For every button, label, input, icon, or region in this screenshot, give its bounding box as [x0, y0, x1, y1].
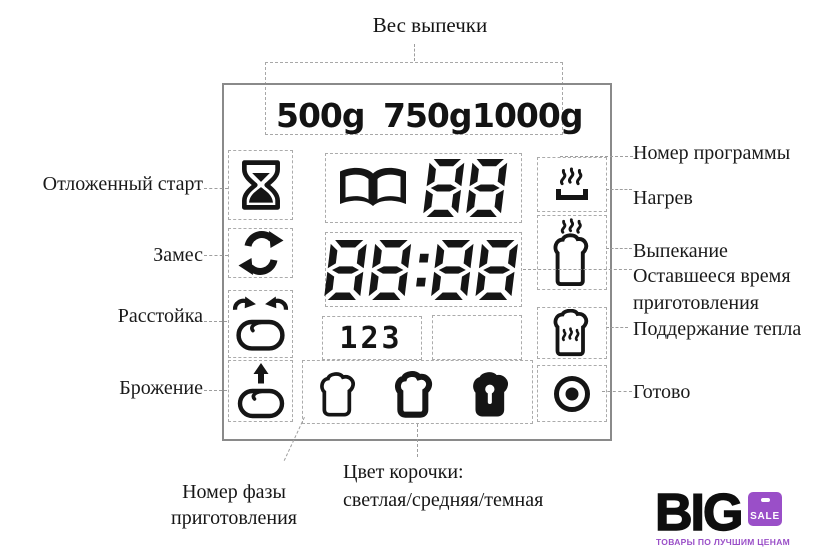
crust-color-cell [302, 360, 533, 424]
ferment-cell [228, 360, 293, 422]
proof-dough-icon [232, 296, 289, 352]
keep-warm-bread-icon [550, 309, 595, 357]
leader-baking [606, 248, 632, 249]
label-ready: Готово [633, 379, 690, 405]
label-delayed-start: Отложенный старт [10, 171, 203, 197]
logo-sale-text: SALE [748, 511, 782, 522]
recipe-book-icon [335, 165, 411, 211]
program-number-display [423, 159, 512, 217]
label-phase-number: Номер фазы приготовления [148, 479, 320, 531]
leader-program [560, 156, 633, 157]
label-crust-color: Цвет корочки: светлая/средняя/темная [343, 458, 543, 514]
phase-digits: 123 [326, 321, 416, 356]
bread-maker-display-diagram: Вес выпечки 500g 750g 1000g [0, 0, 840, 555]
ready-cell [537, 365, 607, 422]
leader-proof [204, 321, 227, 322]
heating-cell [537, 157, 607, 212]
label-remaining-time-line1: Оставшееся время [633, 263, 791, 290]
leader-ready [602, 391, 632, 392]
knead-rotate-icon [238, 231, 284, 275]
label-heating: Нагрев [633, 185, 693, 211]
label-program-number: Номер программы [633, 140, 790, 166]
leader-heating [606, 189, 632, 190]
diagram-title: Вес выпечки [300, 13, 560, 38]
time-cell [325, 232, 522, 307]
baking-cell [537, 215, 607, 290]
keep-warm-cell [537, 307, 607, 359]
leader-ferment [204, 390, 227, 391]
label-baking: Выпекание [633, 238, 728, 264]
label-phase-line2: приготовления [148, 505, 320, 531]
label-remaining-time: Оставшееся время приготовления [633, 263, 791, 317]
knead-cell [228, 228, 293, 278]
label-remaining-time-line2: приготовления [633, 290, 791, 317]
label-knead: Замес [10, 242, 203, 268]
ready-target-icon [551, 373, 593, 415]
label-ferment: Брожение [10, 375, 203, 401]
leader-keep-warm [606, 327, 628, 328]
leader-delayed-start [204, 188, 228, 189]
label-phase-line1: Номер фазы [148, 479, 320, 505]
label-proof: Расстойка [10, 303, 203, 329]
time-display [324, 240, 523, 300]
label-crust-line1: Цвет корочки: [343, 458, 543, 486]
bread-medium-icon [392, 366, 442, 418]
weight-500g: 500g [276, 96, 360, 135]
bag-handle-icon [761, 498, 770, 502]
logo-tagline: ТОВАРЫ ПО ЛУЧШИМ ЦЕНАМ [656, 537, 784, 547]
title-leader-line [414, 44, 415, 61]
bread-dark-icon [469, 366, 519, 418]
logo-sale-bag: SALE [748, 492, 782, 526]
program-number-cell [325, 153, 522, 223]
heating-tray-icon [551, 164, 593, 206]
weight-750g: 750g [383, 96, 459, 135]
leader-crust-vertical [417, 424, 418, 457]
leader-knead [204, 255, 228, 256]
proof-cell [228, 290, 293, 358]
label-keep-warm: Поддержание тепла [633, 316, 801, 342]
logo-big-text: BIG [655, 490, 741, 536]
weight-1000g: 1000g [472, 96, 566, 135]
empty-cell [432, 315, 522, 360]
baking-bread-steam-icon [549, 218, 595, 288]
label-crust-line2: светлая/средняя/темная [343, 486, 543, 514]
delayed-start-cell [228, 150, 293, 220]
hourglass-icon [240, 159, 282, 211]
bread-light-icon [316, 366, 366, 418]
ferment-dough-icon [236, 363, 286, 419]
leader-remaining-time [523, 269, 632, 270]
